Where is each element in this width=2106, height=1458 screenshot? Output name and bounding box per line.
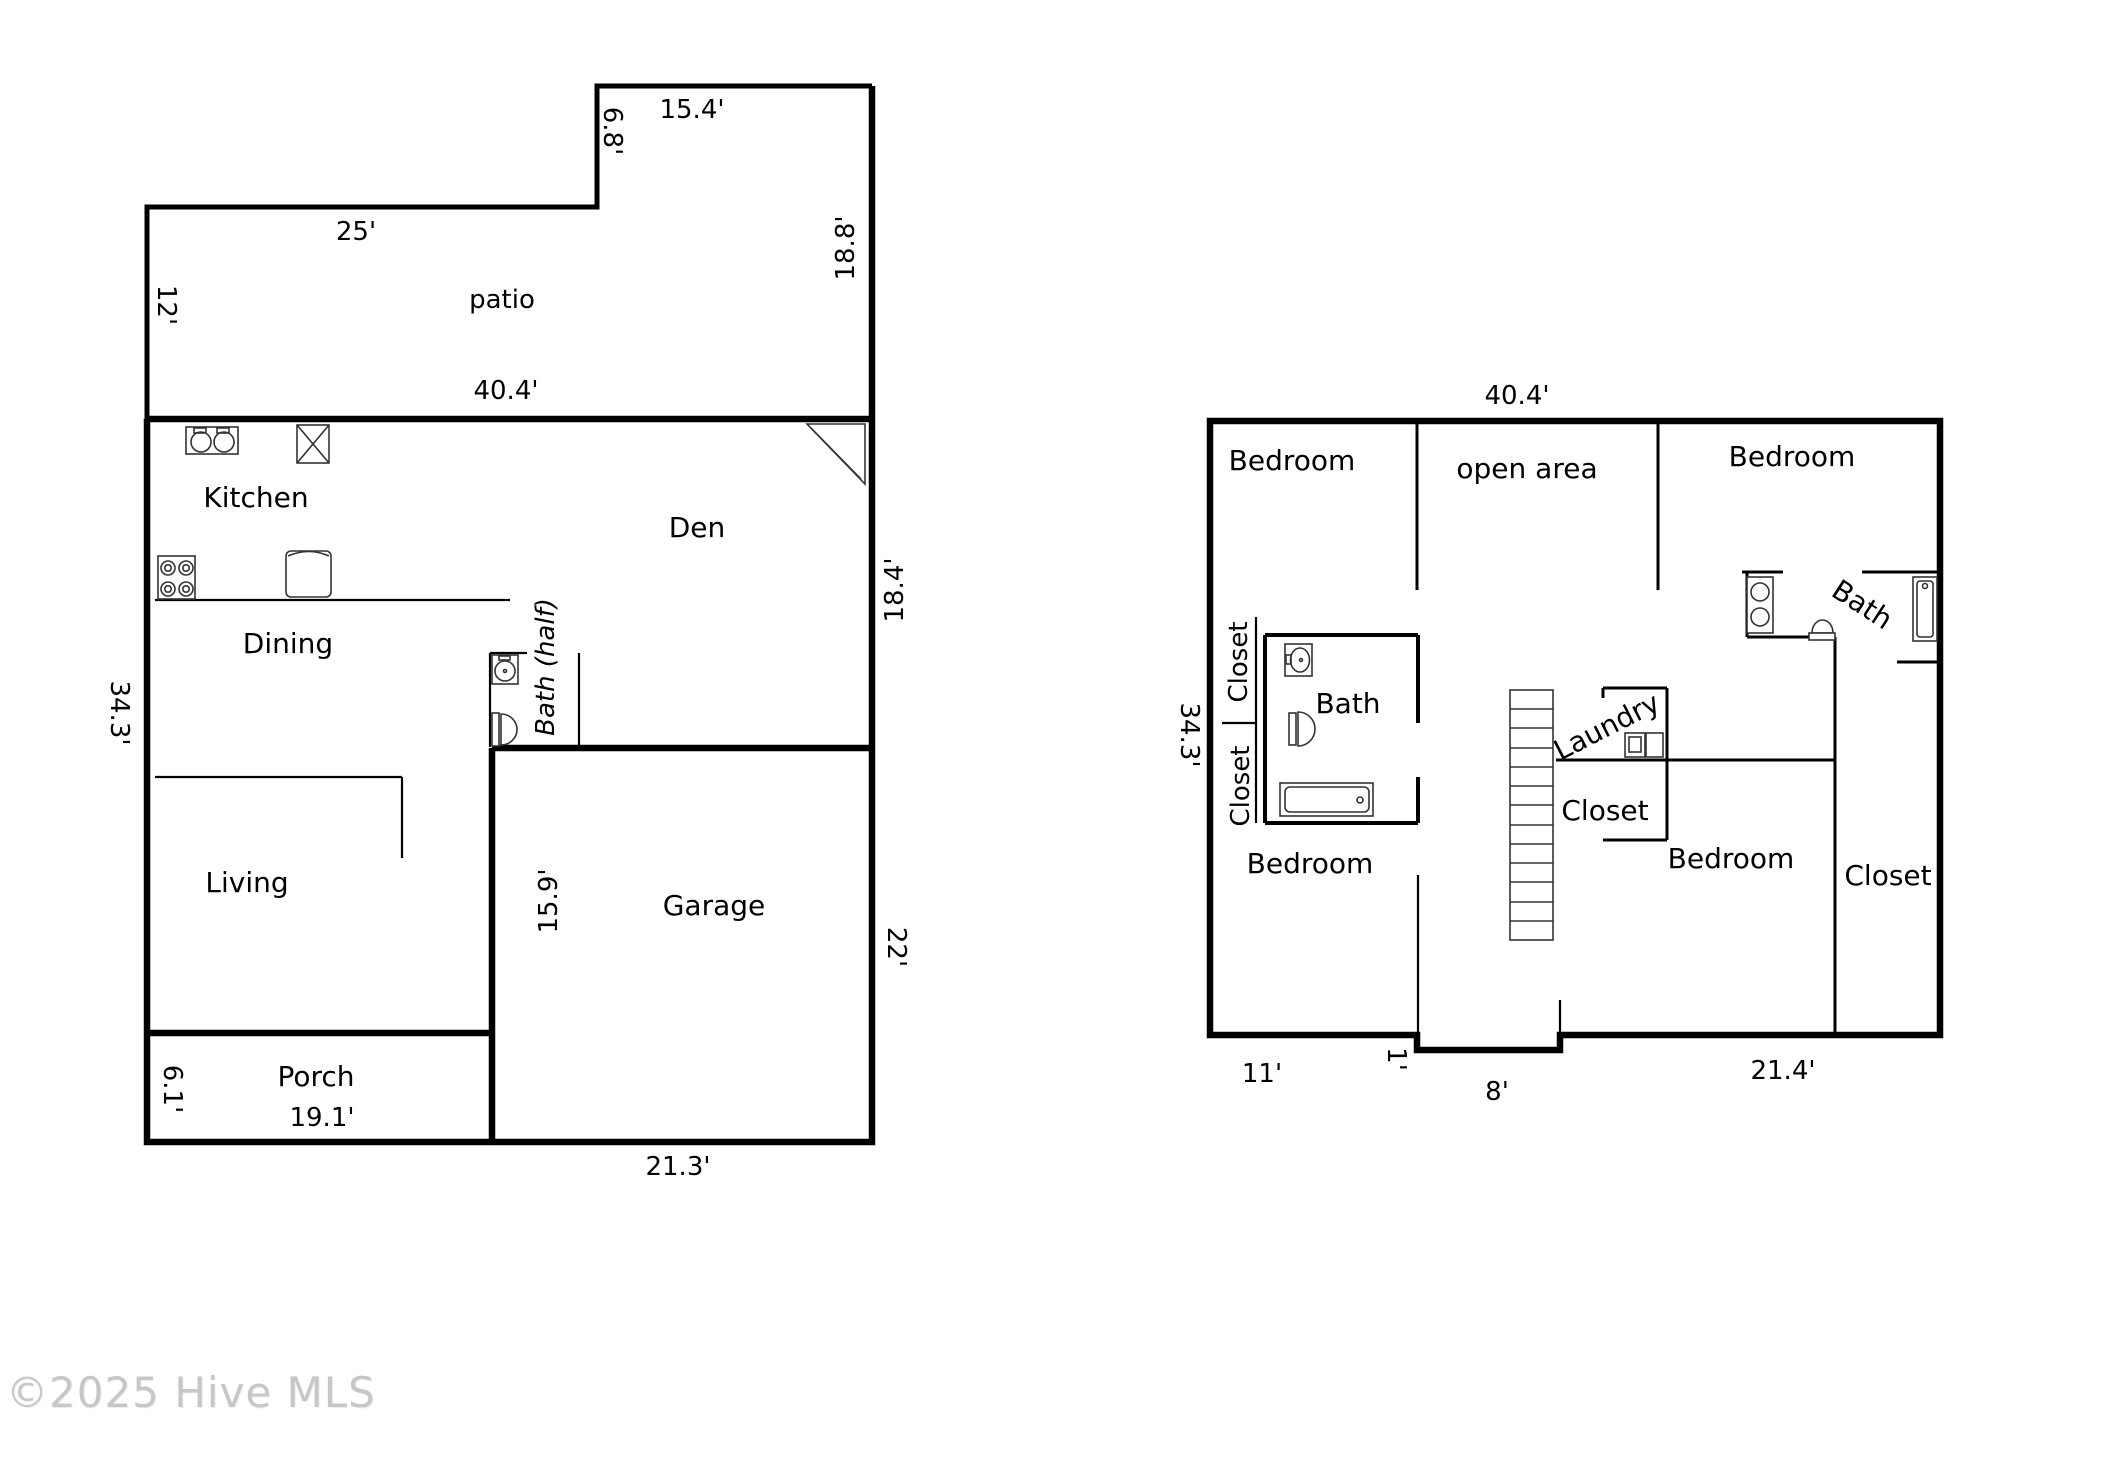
dim-label-patio-top-right: 15.4' (659, 97, 724, 123)
dim-label-porch-width: 19.1' (289, 1105, 354, 1131)
room-label-bedroom-bl: Bedroom (1247, 850, 1374, 878)
room-label-bedroom-tr: Bedroom (1729, 443, 1856, 471)
room-label-closet-right: Closet (1844, 862, 1931, 890)
room-label-closet-mid: Closet (1561, 797, 1648, 825)
washer-dryer-icon (1625, 733, 1663, 757)
toilet-icon (1809, 620, 1835, 640)
room-label-half-bath: Bath (half) (533, 598, 559, 736)
bathtub-icon (1280, 783, 1373, 816)
room-label-closet-upper: Closet (1226, 621, 1252, 702)
dim-label-main-left: 34.3' (106, 680, 132, 745)
room-label-patio: patio (469, 287, 535, 313)
dim-label-bottom-left: 11' (1242, 1061, 1282, 1087)
room-label-bath-left: Bath (1315, 690, 1380, 718)
dim-label-garage-width: 21.3' (645, 1154, 710, 1180)
room-label-open-area: open area (1456, 455, 1597, 483)
dim-label-entry-depth: 1' (1383, 1047, 1409, 1071)
half-bath-toilet-icon (492, 713, 517, 746)
dim-label-patio-left: 12' (153, 285, 179, 325)
outer-wall-right-bottom-left (147, 86, 872, 1142)
room-label-porch: Porch (277, 1063, 354, 1091)
room-label-bedroom-tl: Bedroom (1229, 447, 1356, 475)
dim-label-upper-left-height: 34.3' (1176, 702, 1202, 767)
patio-walls (147, 86, 872, 419)
stairs-icon (1510, 690, 1553, 940)
dim-label-patio-top: 25' (336, 219, 376, 245)
dim-label-garage-right: 22' (883, 927, 909, 967)
stove-icon (158, 556, 195, 599)
dim-label-porch-left: 6.1' (159, 1065, 185, 1114)
room-label-dining: Dining (243, 630, 333, 658)
dim-label-upper-top-width: 40.4' (1484, 383, 1549, 409)
dim-label-patio-right: 18.8' (833, 215, 859, 280)
dim-label-garage-left: 15.9' (536, 868, 562, 933)
window-icon (297, 425, 329, 463)
bath-sink-icon (1285, 644, 1312, 676)
room-label-bedroom-br: Bedroom (1668, 845, 1795, 873)
room-label-closet-lower: Closet (1228, 745, 1254, 826)
half-bath-sink-icon (492, 655, 518, 684)
kitchen-sink-icon (186, 427, 238, 454)
watermark-text: ©2025 Hive MLS (6, 1368, 376, 1417)
dim-label-patio-notch: 6.8' (599, 107, 625, 156)
water-heater-icon (286, 551, 331, 597)
room-label-kitchen: Kitchen (203, 484, 308, 512)
fireplace-icon (807, 424, 865, 484)
floorplan-page: 15.4' 6.8' 25' patio 12' 18.8' 40.4' Kit… (0, 0, 2106, 1458)
first-floor-walls (147, 86, 872, 1142)
dim-label-bottom-right: 21.4' (1750, 1058, 1815, 1084)
dim-label-main-width: 40.4' (473, 378, 538, 404)
room-label-garage: Garage (663, 892, 766, 920)
floorplan-drawing (0, 0, 2106, 1458)
room-label-den: Den (669, 514, 726, 542)
dim-label-den-right: 18.4' (882, 557, 908, 622)
vanity-icon (1747, 577, 1773, 633)
room-label-living: Living (205, 869, 288, 897)
first-floor-fixtures (158, 424, 865, 746)
living-partial-wall (155, 777, 402, 858)
bath-toilet-icon (1289, 712, 1315, 746)
tub-icon (1913, 577, 1937, 641)
dim-label-entry-width: 8' (1485, 1079, 1509, 1105)
